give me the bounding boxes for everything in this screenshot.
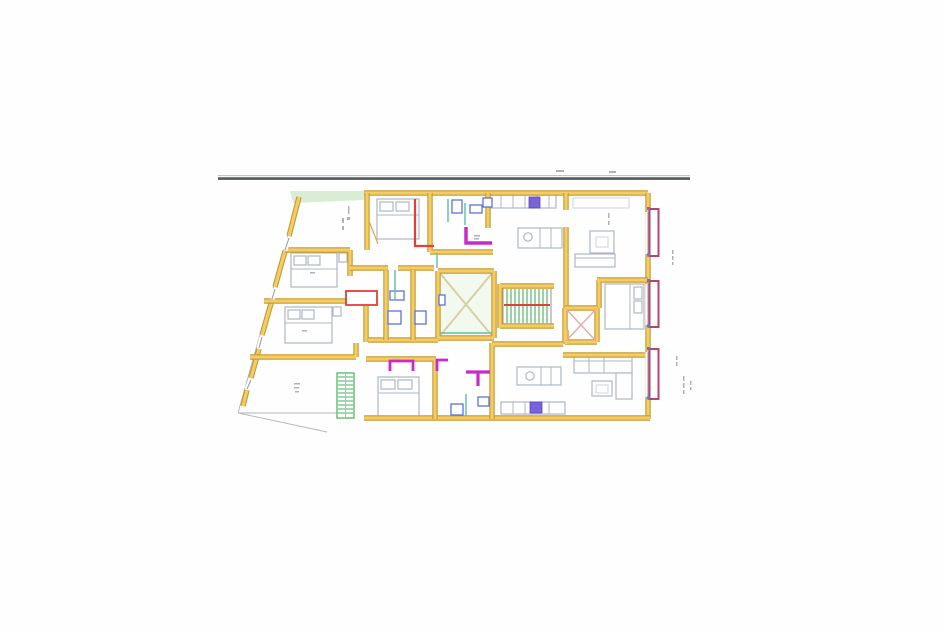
walls-mid-bathrooms-core (386, 270, 413, 340)
wardrobe-bottom-bedroom (390, 361, 413, 371)
pillow (398, 380, 412, 389)
kitchen-top: Kitchen units (489, 195, 562, 248)
shaft-cross (566, 309, 596, 341)
nightstand (339, 253, 347, 262)
table-inner (596, 237, 608, 247)
pillow (302, 310, 314, 319)
balcony-bottom (650, 349, 659, 399)
living-bottom-right (574, 356, 632, 399)
appliance-bottom-kitchen (530, 402, 542, 413)
living-top-right: Living room furniture (573, 198, 629, 267)
closet-corner (437, 360, 448, 371)
red-shower-box (346, 291, 377, 305)
balcony-top (650, 209, 659, 256)
bath-counter-bottom (466, 372, 490, 386)
site-boundary-line: Site boundary line (218, 176, 690, 179)
pillow (308, 256, 320, 265)
sofa (575, 254, 615, 267)
pillow (396, 202, 409, 211)
lightwell: Lightwell courtyard (439, 272, 493, 337)
washbasin (478, 397, 489, 406)
sheet: Residential apartment floor plan Site bo… (0, 0, 945, 630)
washbasin (390, 291, 404, 300)
pillow (294, 256, 306, 265)
toilet (388, 311, 401, 324)
pillow (380, 202, 393, 211)
balconies: Street facade balconies (647, 207, 659, 400)
sofa-chaise (616, 373, 632, 399)
bed-top-center (377, 199, 419, 239)
vent-grille (439, 295, 445, 305)
toilet (415, 311, 426, 324)
nightstand (333, 307, 341, 316)
kitchen-cabinets (489, 195, 556, 208)
main-staircase: Main staircase (503, 288, 551, 324)
bidet (483, 198, 492, 207)
sofa (574, 356, 632, 373)
appliance-top-kitchen (529, 197, 540, 208)
coffee-table-inner (596, 385, 608, 393)
toilet (451, 404, 463, 415)
washbasin (470, 205, 482, 213)
pillow (381, 380, 395, 389)
kitchen-island (517, 367, 561, 385)
bed-upper-left (291, 253, 347, 287)
pillow (288, 310, 300, 319)
toilet (452, 200, 462, 213)
floor-plan-drawing: Residential apartment floor plan Site bo… (0, 0, 945, 630)
bed-mid-left (285, 307, 341, 343)
bed-right-middle (605, 284, 644, 329)
balcony-middle (650, 281, 659, 327)
pillow (634, 287, 642, 299)
wardrobe-row (573, 198, 629, 208)
service-stair: Service stair (337, 373, 354, 418)
bed-bottom-center (378, 377, 419, 417)
pillow (634, 301, 642, 313)
ventilation-shaft: Ventilation shaft (566, 309, 596, 341)
walls-mid-bathrooms (386, 270, 413, 340)
green-setback-strip (290, 191, 364, 203)
